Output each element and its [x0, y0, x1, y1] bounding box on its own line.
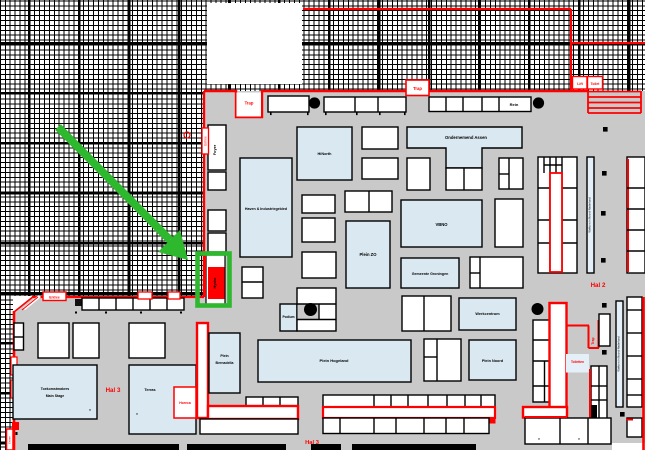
svg-text:Welkom in Noord-Nederland: Welkom in Noord-Nederland	[617, 336, 621, 372]
svg-text:Plein ZO: Plein ZO	[360, 252, 378, 257]
svg-text:Bernadella: Bernadella	[216, 361, 234, 365]
svg-text:Rein: Rein	[510, 102, 519, 107]
svg-text:Toiletten: Toiletten	[571, 360, 584, 364]
svg-text:Foyer: Foyer	[213, 144, 217, 155]
svg-text:Hal 3: Hal 3	[106, 387, 121, 394]
svg-text:HiNorth: HiNorth	[318, 152, 333, 156]
svg-text:Trap: Trap	[591, 337, 595, 344]
svg-text:Toekomstmakers: Toekomstmakers	[41, 387, 70, 391]
svg-text:Haven & Industriegebied: Haven & Industriegebied	[245, 207, 287, 211]
svg-text:Plein Hogeland: Plein Hogeland	[320, 358, 349, 363]
svg-text:*: *	[136, 413, 138, 419]
svg-text:Lift: Lift	[577, 82, 583, 86]
svg-text:Plein: Plein	[220, 354, 228, 358]
svg-text:Entree: Entree	[204, 136, 208, 146]
svg-text:Main Stage: Main Stage	[46, 394, 65, 398]
svg-text:Terras: Terras	[144, 388, 155, 392]
svg-text:*: *	[538, 438, 540, 444]
svg-text:Werkcentrum: Werkcentrum	[475, 312, 500, 316]
svg-text:Ondernemend Assen: Ondernemend Assen	[445, 135, 487, 140]
svg-text:Welkom in Noord-Nederland: Welkom in Noord-Nederland	[588, 197, 592, 233]
svg-text:Podium: Podium	[282, 315, 294, 319]
svg-text:Horeca: Horeca	[179, 401, 191, 405]
svg-text:Trap: Trap	[413, 86, 422, 91]
svg-text:*: *	[578, 438, 580, 444]
svg-text:Entree: Entree	[8, 436, 12, 444]
svg-text:*: *	[89, 409, 91, 415]
svg-text:Plein Noord: Plein Noord	[482, 359, 504, 363]
svg-text:Hydro: Hydro	[213, 277, 217, 289]
svg-text:Gemeente Groningen: Gemeente Groningen	[412, 272, 449, 276]
svg-text:Toilet: Toilet	[591, 82, 601, 86]
svg-text:Entree: Entree	[49, 296, 60, 300]
svg-text:VBNO: VBNO	[435, 222, 448, 227]
svg-text:Trap: Trap	[245, 101, 254, 106]
svg-text:Hal 2: Hal 2	[591, 282, 606, 289]
